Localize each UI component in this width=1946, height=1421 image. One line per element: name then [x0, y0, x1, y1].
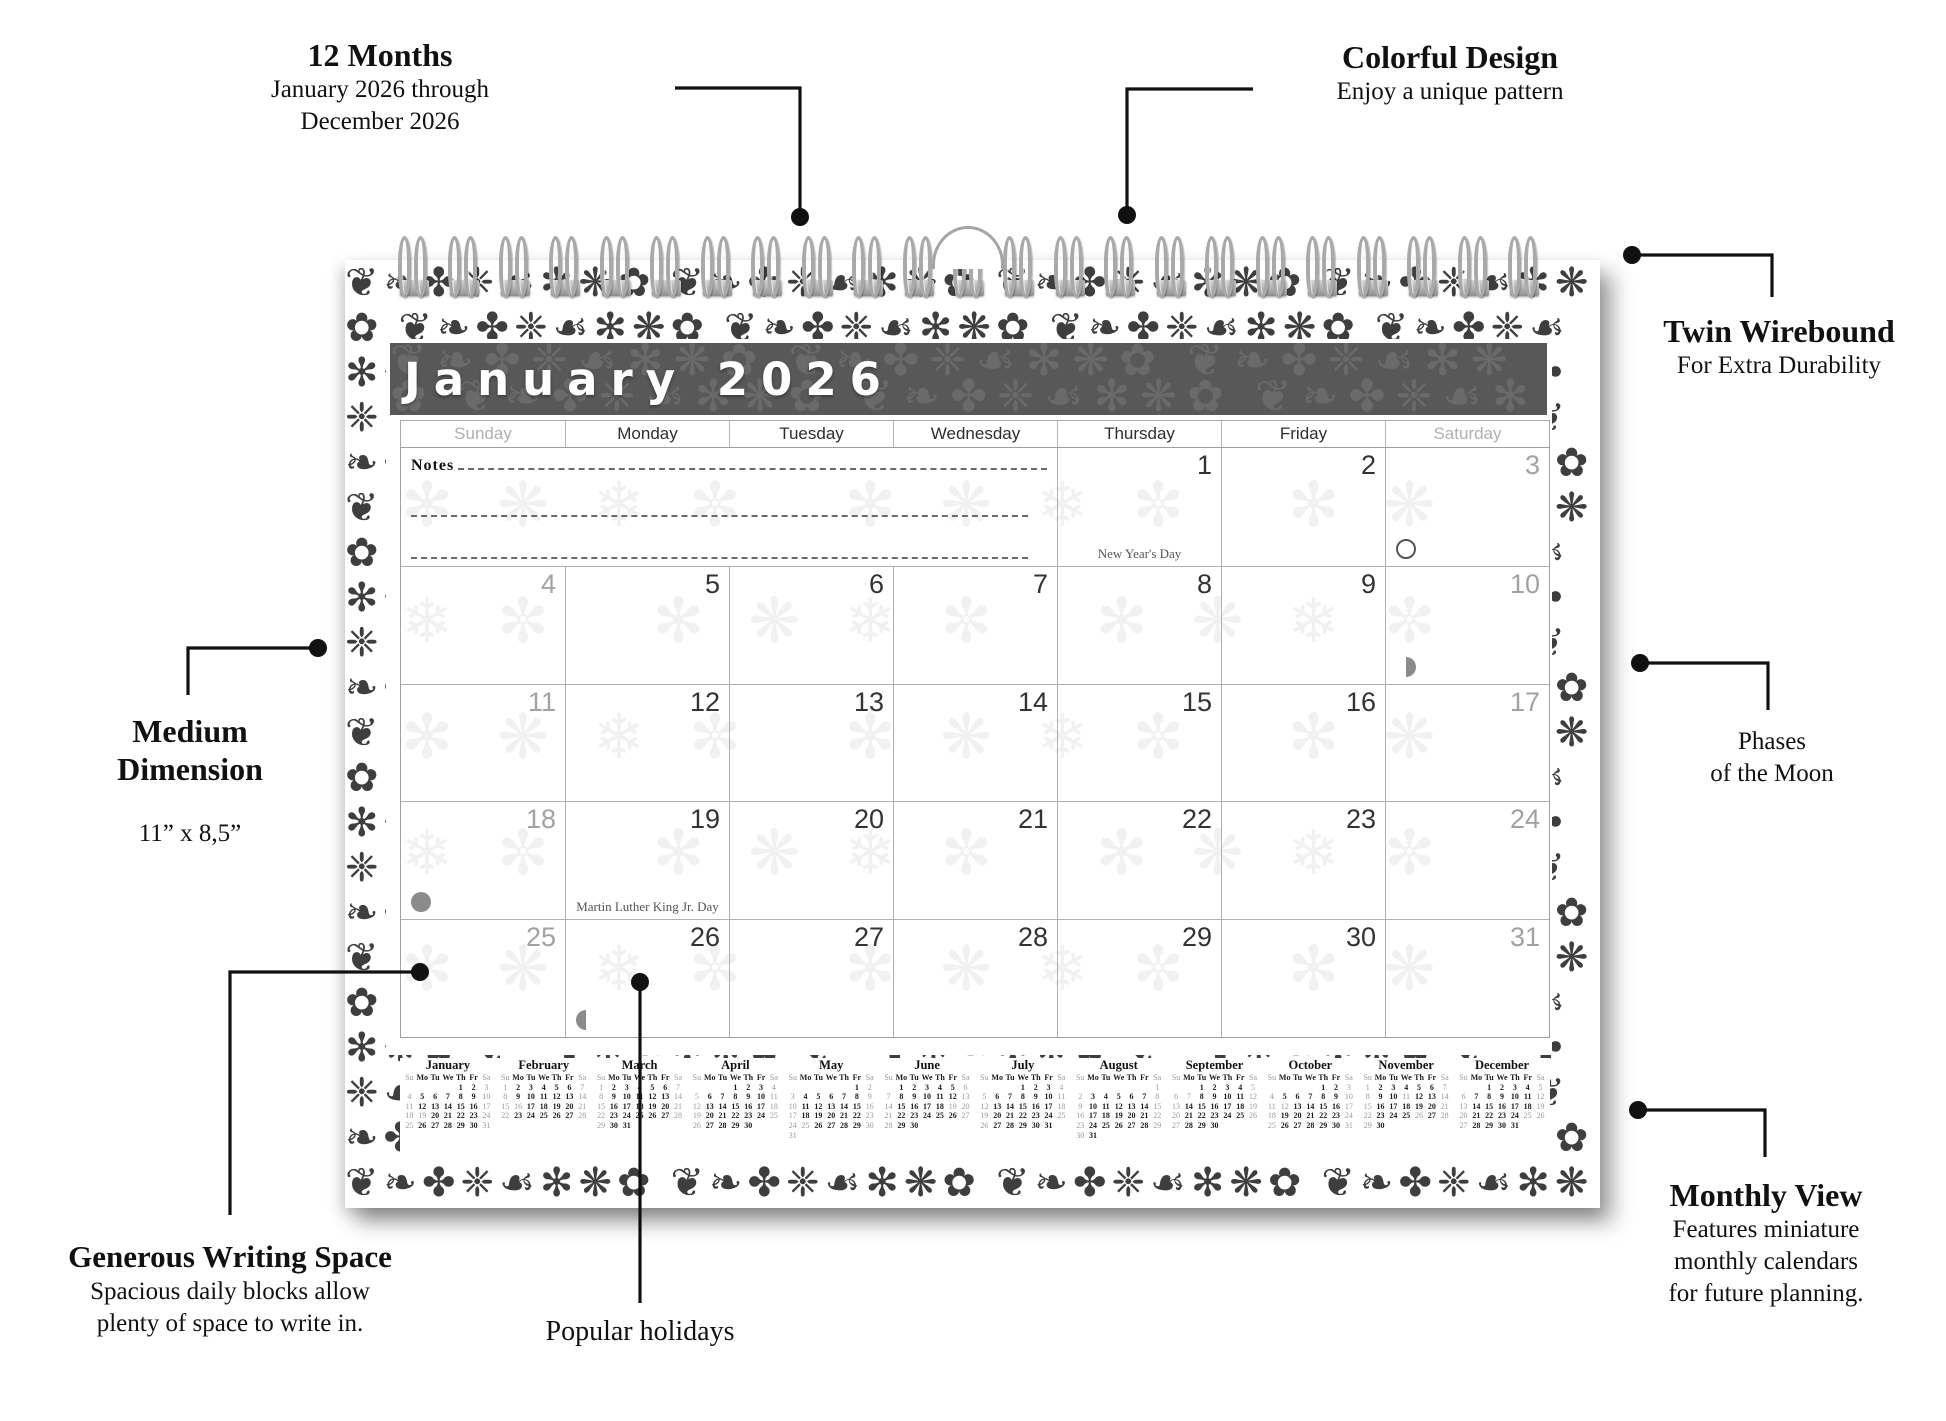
mini-day: 18: [403, 1111, 416, 1121]
mini-day: 27: [659, 1111, 672, 1121]
wire-loop-pair-icon: [600, 236, 634, 298]
mini-day: 4: [1400, 1083, 1413, 1093]
mini-day: 16: [742, 1102, 755, 1112]
mini-weekday-sa: Sa: [1534, 1073, 1547, 1083]
mini-month-november: NovemberSuMoTuWeThFrSa123456789101112131…: [1358, 1058, 1454, 1152]
mini-weekday-th: Th: [1029, 1073, 1042, 1083]
mini-day: 5: [1278, 1092, 1291, 1102]
mini-day: 10: [1342, 1092, 1355, 1102]
new-moon-icon: [411, 892, 431, 912]
date-number: 8: [1197, 569, 1212, 600]
wire-loop-icon: [1373, 236, 1386, 298]
mini-day: 7: [1138, 1092, 1151, 1102]
mini-month-name: February: [499, 1058, 589, 1073]
mini-month-name: December: [1457, 1058, 1547, 1073]
mini-day: 1: [1195, 1083, 1208, 1093]
full-moon-icon: [1396, 539, 1416, 559]
mini-day: 27: [429, 1121, 442, 1131]
mini-day: 5: [1112, 1092, 1125, 1102]
day-cell-20: 20: [729, 802, 893, 919]
day-cell-5: 5: [565, 567, 729, 684]
mini-day: 15: [1483, 1102, 1496, 1112]
mini-day: 18: [767, 1102, 780, 1112]
mini-day: 2: [1496, 1083, 1509, 1093]
mini-day: 4: [633, 1083, 646, 1093]
mini-day: 21: [716, 1111, 729, 1121]
mini-day: 23: [512, 1111, 525, 1121]
mini-day: 17: [1221, 1102, 1234, 1112]
mini-day: 6: [825, 1092, 838, 1102]
mini-day: 23: [908, 1111, 921, 1121]
wire-loop-pair-icon: [802, 236, 836, 298]
mini-day: 27: [1125, 1121, 1138, 1131]
wire-loop-pair-icon: [852, 236, 886, 298]
mini-weekday-sa: Sa: [1151, 1073, 1164, 1083]
mini-weekday-sa: Sa: [672, 1073, 685, 1083]
mini-day: 16: [607, 1102, 620, 1112]
mini-day: 9: [1496, 1092, 1509, 1102]
mini-day: 17: [786, 1111, 799, 1121]
wire-loop-icon: [616, 236, 629, 298]
mini-day: 20: [959, 1102, 972, 1112]
mini-day: 17: [1342, 1102, 1355, 1112]
wire-loop-pair-icon: [398, 236, 432, 298]
holiday-label: New Year's Day: [1058, 546, 1221, 562]
mini-day: 16: [1208, 1102, 1221, 1112]
mini-day: 31: [1342, 1121, 1355, 1131]
mini-weekday-we: We: [921, 1073, 934, 1083]
mini-day: 6: [991, 1092, 1004, 1102]
mini-day: 8: [1195, 1092, 1208, 1102]
mini-day: 9: [1208, 1092, 1221, 1102]
mini-day: 29: [1195, 1121, 1208, 1131]
connector-dot: [309, 639, 327, 657]
mini-day: 10: [1087, 1102, 1100, 1112]
wire-loop-icon: [1104, 236, 1117, 298]
wire-loop-icon: [1524, 236, 1537, 298]
mini-weekday-mo: Mo: [991, 1073, 1004, 1083]
mini-day: 7: [576, 1083, 589, 1093]
mini-day: 4: [403, 1092, 416, 1102]
mini-day: 6: [959, 1083, 972, 1093]
wire-loop-icon: [852, 236, 865, 298]
mini-month-march: MarchSuMoTuWeThFrSa123456789101112131415…: [592, 1058, 688, 1152]
mini-day: 2: [1374, 1083, 1387, 1093]
mini-weekday-sa: Sa: [863, 1073, 876, 1083]
date-number: 27: [854, 922, 884, 953]
mini-weekday-we: We: [1304, 1073, 1317, 1083]
mini-day: 23: [1496, 1111, 1509, 1121]
mini-day: 8: [1151, 1092, 1164, 1102]
mini-day: 28: [1182, 1121, 1195, 1131]
mini-day: 23: [1208, 1111, 1221, 1121]
mini-day: 14: [1304, 1102, 1317, 1112]
callout-title: Twin Wirebound: [1612, 312, 1946, 350]
wire-loop-icon: [767, 236, 780, 298]
mini-weekday-fr: Fr: [467, 1073, 480, 1083]
callout-title: Medium: [55, 712, 325, 750]
mini-day: 20: [703, 1111, 716, 1121]
mini-month-name: April: [690, 1058, 780, 1073]
mini-day: 18: [799, 1111, 812, 1121]
mini-day: 28: [441, 1121, 454, 1131]
mini-day: 30: [863, 1121, 876, 1131]
mini-day: 29: [850, 1121, 863, 1131]
mini-day: 28: [1470, 1121, 1483, 1131]
mini-weekday-th: Th: [838, 1073, 851, 1083]
callout-text: for future planning.: [1598, 1278, 1934, 1310]
mini-day: 15: [1151, 1102, 1164, 1112]
wire-loop-pair-icon: [1155, 236, 1189, 298]
wire-loop-icon: [868, 236, 881, 298]
day-cell-3: 3: [1385, 448, 1549, 566]
week-row: 1819Martin Luther King Jr. Day2021222324: [401, 801, 1549, 919]
mini-weekday-mo: Mo: [416, 1073, 429, 1083]
mini-weekday-mo: Mo: [895, 1073, 908, 1083]
date-number: 2: [1361, 450, 1376, 481]
mini-day: 7: [1004, 1092, 1017, 1102]
wire-loop-icon: [802, 236, 815, 298]
mini-day: 16: [512, 1102, 525, 1112]
mini-day: 3: [921, 1083, 934, 1093]
mini-month-june: JuneSuMoTuWeThFrSa1234567891011121314151…: [879, 1058, 975, 1152]
mini-day: 15: [454, 1102, 467, 1112]
mini-day: 21: [672, 1102, 685, 1112]
mini-day: 13: [563, 1092, 576, 1102]
mini-day: 18: [933, 1102, 946, 1112]
date-number: 7: [1033, 569, 1048, 600]
mini-weekday-tu: Tu: [812, 1073, 825, 1083]
mini-day: 12: [1534, 1092, 1547, 1102]
wire-loop-pair-icon: [499, 236, 533, 298]
day-cell-7: 7: [893, 567, 1057, 684]
mini-day: 1: [850, 1083, 863, 1093]
mini-day: 11: [767, 1092, 780, 1102]
mini-day: 21: [576, 1102, 589, 1112]
connector-dot: [791, 208, 809, 226]
mini-day: 27: [825, 1121, 838, 1131]
mini-weekday-mo: Mo: [1278, 1073, 1291, 1083]
mini-day: 23: [863, 1111, 876, 1121]
weekday-header-friday: Friday: [1221, 421, 1385, 447]
mini-day: 26: [690, 1121, 703, 1131]
mini-day: 3: [524, 1083, 537, 1093]
mini-day: 7: [441, 1092, 454, 1102]
mini-day: 30: [467, 1121, 480, 1131]
mini-day: 28: [716, 1121, 729, 1131]
mini-month-name: May: [786, 1058, 876, 1073]
hanging-hook-icon: [932, 226, 1004, 269]
mini-day: 27: [959, 1111, 972, 1121]
day-cell-21: 21: [893, 802, 1057, 919]
mini-day: 26: [1413, 1111, 1426, 1121]
connector-twin-wirebound: [1632, 255, 1772, 297]
mini-day: 21: [1004, 1111, 1017, 1121]
mini-day: 12: [1112, 1102, 1125, 1112]
mini-day: 25: [1400, 1111, 1413, 1121]
mini-day: 24: [1042, 1111, 1055, 1121]
mini-calendars-strip: JanuarySuMoTuWeThFrSa1234567891011121314…: [400, 1058, 1550, 1152]
day-cell-31: 31: [1385, 920, 1549, 1037]
mini-day: 24: [1221, 1111, 1234, 1121]
mini-day: 24: [1342, 1111, 1355, 1121]
mini-day: 12: [550, 1092, 563, 1102]
date-number: 12: [690, 687, 720, 718]
mini-weekday-fr: Fr: [1234, 1073, 1247, 1083]
mini-day: 12: [812, 1102, 825, 1112]
mini-weekday-we: We: [1016, 1073, 1029, 1083]
callout-title: 12 Months: [215, 36, 545, 74]
mini-weekday-sa: Sa: [959, 1073, 972, 1083]
mini-day: 10: [1387, 1092, 1400, 1102]
mini-day: 11: [1234, 1092, 1247, 1102]
mini-day: 12: [1278, 1102, 1291, 1112]
mini-day: 30: [1496, 1121, 1509, 1131]
mini-weekday-fr: Fr: [755, 1073, 768, 1083]
mini-weekday-tu: Tu: [908, 1073, 921, 1083]
mini-day: 26: [416, 1121, 429, 1131]
mini-day: 29: [595, 1121, 608, 1131]
mini-day: 5: [978, 1092, 991, 1102]
notes-area: Notes: [401, 448, 1057, 566]
wire-loop-icon: [1155, 236, 1168, 298]
day-cell-16: 16: [1221, 685, 1385, 802]
mini-day: 26: [1278, 1121, 1291, 1131]
mini-day: 12: [1413, 1092, 1426, 1102]
wire-loop-icon: [919, 236, 932, 298]
mini-weekday-tu: Tu: [1483, 1073, 1496, 1083]
date-number: 23: [1346, 804, 1376, 835]
mini-day: 1: [1361, 1083, 1374, 1093]
mini-day: 31: [480, 1121, 493, 1131]
mini-day: 3: [1508, 1083, 1521, 1093]
mini-day: 23: [467, 1111, 480, 1121]
mini-weekday-su: Su: [978, 1073, 991, 1083]
mini-month-grid: SuMoTuWeThFrSa12345678910111213141516171…: [1265, 1073, 1355, 1131]
mini-day: 11: [1099, 1102, 1112, 1112]
mini-day: 24: [620, 1111, 633, 1121]
day-cell-10: 10: [1385, 567, 1549, 684]
mini-day: 10: [524, 1092, 537, 1102]
mini-month-may: MaySuMoTuWeThFrSa12345678910111213141516…: [783, 1058, 879, 1152]
mini-day: 25: [767, 1111, 780, 1121]
mini-day: 14: [1438, 1092, 1451, 1102]
date-number: 5: [705, 569, 720, 600]
first-quarter-moon-icon: [576, 1010, 586, 1030]
mini-day: 7: [1182, 1092, 1195, 1102]
wire-loop-pair-icon: [650, 236, 684, 298]
mini-day: 26: [1247, 1111, 1260, 1121]
mini-day: 10: [1221, 1092, 1234, 1102]
date-number: 31: [1510, 922, 1540, 953]
mini-day: 27: [1170, 1121, 1183, 1131]
wire-loop-icon: [1474, 236, 1487, 298]
date-number: 1: [1197, 450, 1212, 481]
mini-month-name: July: [978, 1058, 1068, 1073]
mini-day: 7: [1470, 1092, 1483, 1102]
mini-day: 3: [755, 1083, 768, 1093]
mini-day: 28: [838, 1121, 851, 1131]
mini-weekday-we: We: [1208, 1073, 1221, 1083]
mini-day: 6: [1291, 1092, 1304, 1102]
mini-day: 24: [755, 1111, 768, 1121]
mini-day: 30: [1374, 1121, 1387, 1131]
mini-day: 19: [1247, 1102, 1260, 1112]
mini-weekday-tu: Tu: [1195, 1073, 1208, 1083]
mini-day: 7: [882, 1092, 895, 1102]
mini-day: 27: [703, 1121, 716, 1131]
callout-text: monthly calendars: [1598, 1246, 1934, 1278]
mini-day: 7: [672, 1083, 685, 1093]
mini-day: 25: [1234, 1111, 1247, 1121]
mini-day: 21: [1138, 1111, 1151, 1121]
mini-month-grid: SuMoTuWeThFrSa12345678910111213141516171…: [786, 1073, 876, 1140]
mini-day: 5: [1413, 1083, 1426, 1093]
callout-text: Popular holidays: [475, 1316, 805, 1348]
mini-month-february: FebruarySuMoTuWeThFrSa123456789101112131…: [496, 1058, 592, 1152]
mini-day: 17: [1387, 1102, 1400, 1112]
mini-day: 30: [607, 1121, 620, 1131]
mini-day: 5: [1534, 1083, 1547, 1093]
mini-day: 14: [1138, 1102, 1151, 1112]
mini-day: 11: [403, 1102, 416, 1112]
wire-loop-icon: [1306, 236, 1319, 298]
mini-day: 4: [933, 1083, 946, 1093]
day-cell-23: 23: [1221, 802, 1385, 919]
mini-month-name: January: [403, 1058, 493, 1073]
mini-day: 17: [1087, 1111, 1100, 1121]
mini-day: 8: [454, 1092, 467, 1102]
mini-day: 10: [786, 1102, 799, 1112]
mini-day: 20: [429, 1111, 442, 1121]
connector-medium-dimension: [188, 648, 318, 695]
mini-day: 10: [1042, 1092, 1055, 1102]
mini-day: 16: [467, 1102, 480, 1112]
mini-day: 19: [646, 1102, 659, 1112]
day-cell-8: 8: [1057, 567, 1221, 684]
mini-day: 31: [786, 1131, 799, 1141]
day-cell-13: 13: [729, 685, 893, 802]
mini-day: 7: [838, 1092, 851, 1102]
wire-loop-icon: [499, 236, 512, 298]
mini-day: 27: [991, 1121, 1004, 1131]
mini-weekday-mo: Mo: [1087, 1073, 1100, 1083]
mini-weekday-su: Su: [1074, 1073, 1087, 1083]
wire-loop-pair-icon: [1054, 236, 1088, 298]
month-title: January 2026: [390, 353, 894, 406]
mini-day: 15: [1195, 1102, 1208, 1112]
mini-day: 18: [633, 1102, 646, 1112]
month-title-bar: ❦❧✤❈☙✻❋✿ ❦❧✤❈☙✻❋✿ ❦❧✤❈☙✻❋✿ ❦❧✤❈☙✻❋✿ ❦❧✤❈…: [390, 343, 1547, 415]
mini-day: 24: [480, 1111, 493, 1121]
mini-weekday-su: Su: [1361, 1073, 1374, 1083]
mini-day: 15: [1317, 1102, 1330, 1112]
mini-weekday-th: Th: [933, 1073, 946, 1083]
mini-day: 19: [416, 1111, 429, 1121]
mini-day: 17: [524, 1102, 537, 1112]
mini-day: 3: [1042, 1083, 1055, 1093]
mini-day: 9: [467, 1092, 480, 1102]
mini-weekday-mo: Mo: [703, 1073, 716, 1083]
mini-day: 5: [946, 1083, 959, 1093]
callout-title: Colorful Design: [1280, 38, 1620, 76]
wire-loop-icon: [1054, 236, 1067, 298]
mini-month-grid: SuMoTuWeThFrSa12345678910111213141516171…: [978, 1073, 1068, 1131]
mini-day: 22: [454, 1111, 467, 1121]
mini-day: 27: [1291, 1121, 1304, 1131]
mini-weekday-tu: Tu: [620, 1073, 633, 1083]
connector-dot: [1629, 1101, 1647, 1119]
day-cell-19: 19Martin Luther King Jr. Day: [565, 802, 729, 919]
wire-loop-pair-icon: [1306, 236, 1340, 298]
mini-weekday-fr: Fr: [1521, 1073, 1534, 1083]
mini-day: 2: [607, 1083, 620, 1093]
mini-day: 28: [882, 1121, 895, 1131]
mini-day: 9: [908, 1092, 921, 1102]
mini-day: 8: [1361, 1092, 1374, 1102]
mini-weekday-tu: Tu: [1099, 1073, 1112, 1083]
mini-weekday-sa: Sa: [480, 1073, 493, 1083]
mini-month-january: JanuarySuMoTuWeThFrSa1234567891011121314…: [400, 1058, 496, 1152]
mini-day: 5: [416, 1092, 429, 1102]
mini-weekday-sa: Sa: [576, 1073, 589, 1083]
mini-month-august: AugustSuMoTuWeThFrSa12345678910111213141…: [1071, 1058, 1167, 1152]
mini-day: 27: [1425, 1111, 1438, 1121]
mini-month-name: August: [1074, 1058, 1164, 1073]
mini-weekday-sa: Sa: [1055, 1073, 1068, 1083]
mini-weekday-su: Su: [499, 1073, 512, 1083]
mini-day: 26: [812, 1121, 825, 1131]
mini-day: 11: [1055, 1092, 1068, 1102]
notes-label: Notes: [411, 457, 454, 475]
wire-loop-pair-icon: [1407, 236, 1441, 298]
wire-loop-icon: [515, 236, 528, 298]
day-cell-6: 6: [729, 567, 893, 684]
mini-weekday-su: Su: [1170, 1073, 1183, 1083]
mini-day: 28: [1438, 1111, 1451, 1121]
mini-day: 14: [441, 1102, 454, 1112]
mini-day: 24: [1508, 1111, 1521, 1121]
mini-weekday-we: We: [729, 1073, 742, 1083]
callout-size: 11” x 8,5”: [55, 818, 325, 850]
mini-day: 21: [882, 1111, 895, 1121]
mini-month-grid: SuMoTuWeThFrSa12345678910111213141516171…: [882, 1073, 972, 1131]
mini-day: 19: [550, 1102, 563, 1112]
mini-day: 2: [908, 1083, 921, 1093]
mini-day: 23: [607, 1111, 620, 1121]
mini-day: 8: [1317, 1092, 1330, 1102]
connector-colorful-design: [1127, 89, 1253, 215]
mini-weekday-fr: Fr: [563, 1073, 576, 1083]
mini-month-name: June: [882, 1058, 972, 1073]
wire-loop-pair-icon: [1256, 236, 1290, 298]
wire-loop-icon: [1272, 236, 1285, 298]
mini-day: 6: [563, 1083, 576, 1093]
wire-loop-icon: [549, 236, 562, 298]
mini-day: 20: [563, 1102, 576, 1112]
mini-day: 10: [480, 1092, 493, 1102]
mini-day: 2: [1074, 1092, 1087, 1102]
wire-loop-icon: [1322, 236, 1335, 298]
mini-day: 25: [1521, 1111, 1534, 1121]
mini-day: 12: [1247, 1092, 1260, 1102]
mini-day: 24: [1087, 1121, 1100, 1131]
connector-phases-moon: [1640, 663, 1768, 710]
notes-writing-line: [411, 517, 1028, 559]
mini-day: 1: [1016, 1083, 1029, 1093]
mini-weekday-tu: Tu: [1387, 1073, 1400, 1083]
connector-dot: [1118, 206, 1136, 224]
